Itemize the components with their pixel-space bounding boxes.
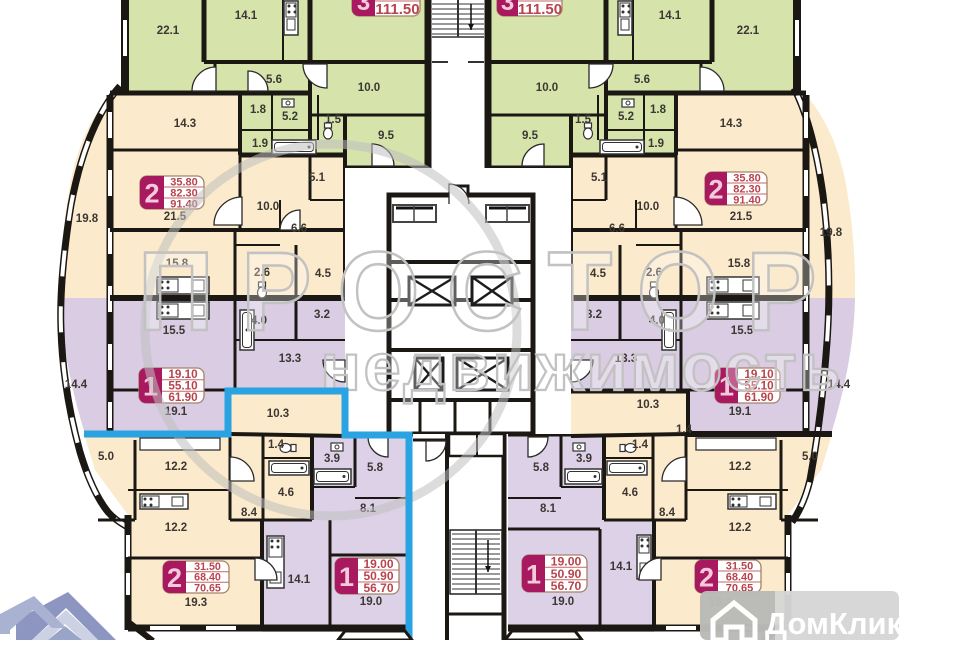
svg-text:1.5: 1.5 — [325, 114, 342, 126]
svg-text:14.1: 14.1 — [288, 574, 311, 586]
svg-text:2: 2 — [699, 562, 714, 592]
svg-text:56.70: 56.70 — [551, 579, 582, 593]
svg-text:5.0: 5.0 — [802, 451, 818, 463]
svg-text:3: 3 — [501, 0, 514, 16]
svg-text:10.0: 10.0 — [257, 201, 279, 213]
svg-text:22.1: 22.1 — [157, 25, 180, 37]
svg-text:4.6: 4.6 — [622, 487, 638, 499]
svg-text:ДомКлик: ДомКлик — [765, 606, 903, 640]
svg-text:5.8: 5.8 — [367, 462, 384, 474]
svg-text:5.2: 5.2 — [282, 111, 298, 123]
svg-text:14.3: 14.3 — [720, 118, 742, 130]
svg-text:1.4: 1.4 — [268, 439, 285, 451]
svg-text:3: 3 — [357, 0, 370, 16]
svg-text:2: 2 — [167, 563, 182, 593]
svg-text:14.3: 14.3 — [174, 118, 196, 130]
svg-text:14.1: 14.1 — [610, 561, 633, 573]
svg-text:14.1: 14.1 — [235, 10, 258, 22]
svg-text:5.2: 5.2 — [618, 111, 634, 123]
svg-text:5.8: 5.8 — [533, 462, 550, 474]
svg-text:12.2: 12.2 — [729, 522, 751, 534]
svg-text:12.2: 12.2 — [165, 522, 187, 534]
svg-text:14.4: 14.4 — [65, 379, 88, 391]
svg-text:1.8: 1.8 — [650, 104, 667, 116]
svg-text:8.4: 8.4 — [659, 507, 676, 519]
svg-text:19.8: 19.8 — [76, 213, 99, 225]
svg-text:1.9: 1.9 — [648, 138, 664, 150]
svg-text:21.5: 21.5 — [730, 211, 753, 223]
svg-text:10.0: 10.0 — [637, 201, 659, 213]
svg-text:1.5: 1.5 — [575, 114, 592, 126]
svg-text:13.3: 13.3 — [279, 353, 301, 365]
svg-text:1.9: 1.9 — [252, 138, 268, 150]
svg-text:19.0: 19.0 — [360, 596, 382, 608]
svg-text:8.1: 8.1 — [540, 503, 557, 515]
svg-text:10.3: 10.3 — [267, 408, 289, 420]
svg-text:1: 1 — [526, 559, 541, 589]
svg-text:9.5: 9.5 — [522, 130, 539, 142]
svg-text:5.6: 5.6 — [266, 74, 282, 86]
svg-text:10.0: 10.0 — [536, 82, 558, 94]
svg-text:111.50: 111.50 — [518, 1, 562, 18]
svg-text:10.0: 10.0 — [358, 82, 380, 94]
svg-text:70.65: 70.65 — [194, 582, 221, 594]
svg-text:2: 2 — [144, 178, 159, 208]
svg-text:2: 2 — [708, 174, 723, 204]
svg-text:61.90: 61.90 — [168, 391, 198, 404]
svg-text:1.4: 1.4 — [632, 439, 649, 451]
svg-text:12.2: 12.2 — [165, 461, 187, 473]
svg-text:недвижимость: недвижимость — [321, 330, 844, 405]
svg-text:3.9: 3.9 — [324, 453, 340, 465]
svg-text:3.9: 3.9 — [576, 453, 592, 465]
svg-text:12.2: 12.2 — [729, 461, 751, 473]
svg-text:1.8: 1.8 — [250, 104, 267, 116]
svg-text:5.6: 5.6 — [634, 74, 650, 86]
svg-text:8.4: 8.4 — [241, 507, 258, 519]
svg-text:9.5: 9.5 — [378, 130, 395, 142]
svg-text:14.1: 14.1 — [659, 10, 682, 22]
svg-text:22.1: 22.1 — [737, 25, 760, 37]
svg-text:1.4: 1.4 — [676, 424, 693, 436]
svg-text:5.0: 5.0 — [98, 451, 114, 463]
svg-text:4.6: 4.6 — [278, 487, 294, 499]
svg-text:56.70: 56.70 — [363, 581, 393, 595]
svg-text:19.0: 19.0 — [552, 596, 574, 608]
svg-text:91.40: 91.40 — [733, 194, 761, 206]
svg-text:5.1: 5.1 — [591, 172, 608, 184]
svg-text:5.1: 5.1 — [309, 172, 326, 184]
svg-text:1: 1 — [339, 562, 354, 592]
svg-text:19.1: 19.1 — [729, 406, 752, 418]
svg-text:19.3: 19.3 — [185, 597, 207, 609]
svg-text:111.50: 111.50 — [375, 1, 419, 18]
